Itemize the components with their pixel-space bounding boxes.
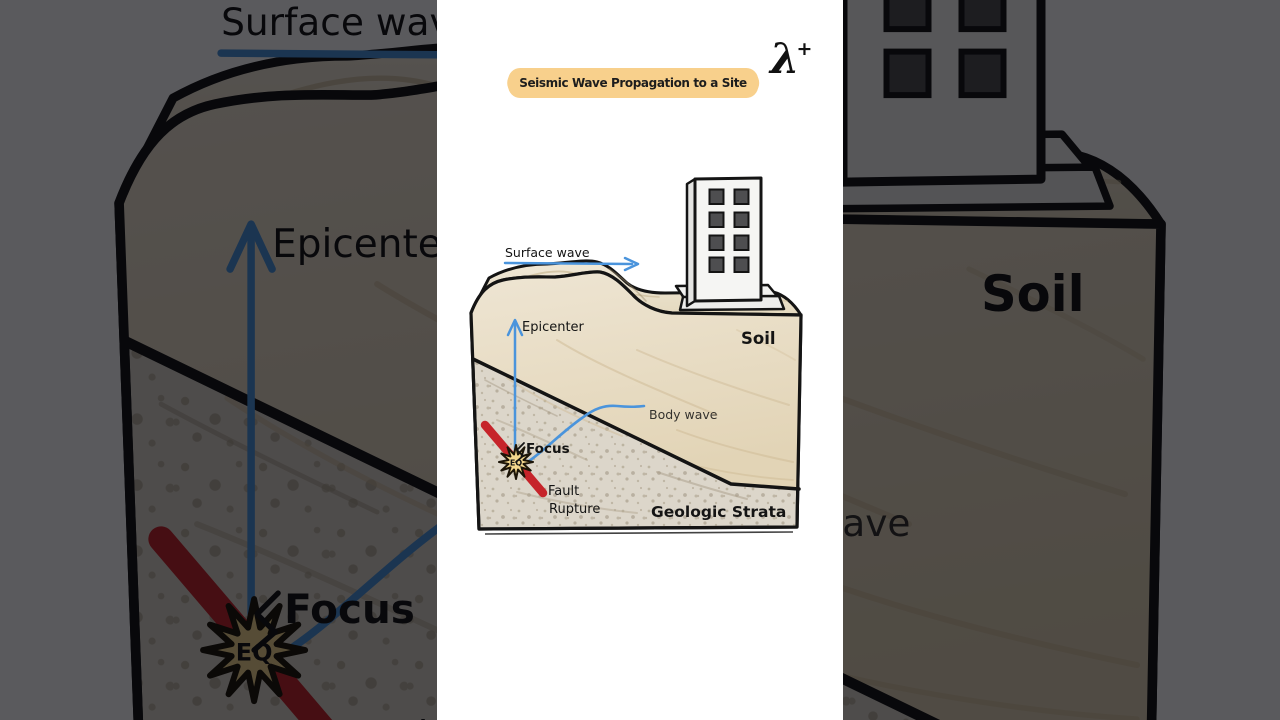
video-frame: Seismic Wave Propagation to a Site λ+ [0, 0, 1280, 720]
lambda-plus-logo: λ+ [770, 38, 815, 80]
video-title: Seismic Wave Propagation to a Site [507, 70, 759, 96]
background-dim-overlay-right [843, 0, 1280, 720]
background-dim-overlay-left [0, 0, 437, 720]
plus-glyph: + [796, 38, 812, 60]
video-content-panel: Seismic Wave Propagation to a Site λ+ [437, 0, 843, 720]
background-panel-right [843, 0, 1280, 720]
seismic-diagram-main [437, 0, 843, 720]
background-panel-left [0, 0, 437, 720]
